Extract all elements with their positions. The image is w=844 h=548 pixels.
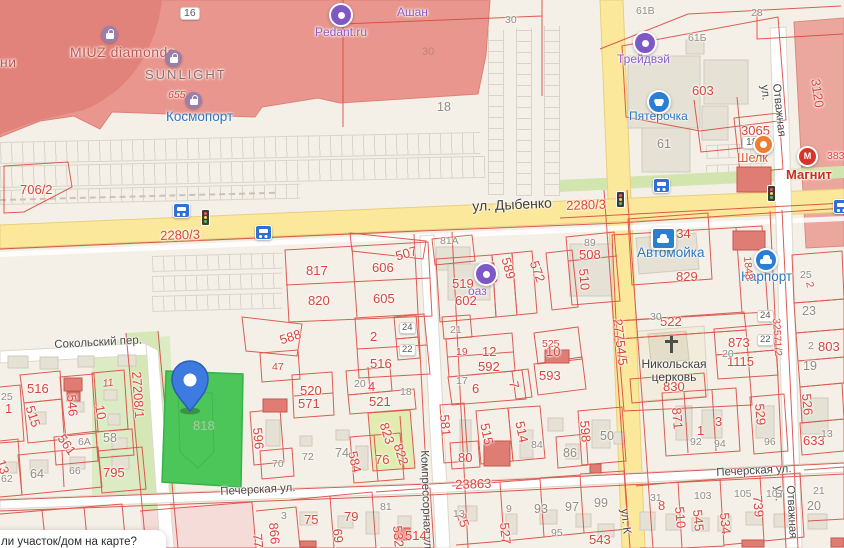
map-label: 96 [764,437,776,448]
poi-ashan[interactable]: Ашан [397,6,428,19]
map-label: 589 [498,256,517,281]
map-label: 47 [272,362,284,373]
map-label: 508 [579,248,601,262]
poi-pedant[interactable]: Pedant.ru [315,26,367,39]
map-label: 516 [370,357,392,371]
map-label: 84 [531,440,543,451]
map-label: 596 [250,427,266,450]
bus-icon[interactable] [833,199,844,214]
map-label: 74 [335,447,349,461]
map-label: 571 [298,397,320,411]
map-label: 30 [650,312,662,323]
map-label: 23863 [455,477,492,492]
map-label: 546 [64,394,80,417]
map-label: 543 [589,533,611,547]
map-label: 510 [576,268,592,291]
map-label: 20 [354,379,366,390]
map-label: 866 [266,522,282,545]
map-label: 803 [818,340,840,354]
map-label: 76 [375,453,389,467]
map-label: 6А [78,437,91,448]
map-label: 655 [168,90,186,101]
map-label: 21 [813,486,825,497]
map-label: 13 [821,429,833,440]
map-label: 64 [30,468,44,482]
magnit-icon[interactable] [797,146,818,167]
map-label: 61В [636,6,655,17]
map-label: 516 [27,382,49,396]
map-label: 2 [808,341,814,352]
poi-church[interactable]: Никольская церковь [638,358,710,384]
map-label: 50 [600,430,614,444]
map-label: 66 [69,466,81,477]
map-label: 522 [660,315,682,329]
map-label: 25 [800,270,812,281]
map-label: 871 [669,407,685,430]
map-label: 706/2 [20,183,53,197]
map-label: 10 [92,404,108,421]
map-label: 572 [527,259,548,284]
map-label: ул. К [618,508,633,534]
map-label: 581 [437,414,453,437]
traffic-icon [616,191,625,208]
map-label: 103 [694,491,712,502]
map-label: 820 [308,294,330,308]
bus-icon[interactable] [255,225,272,240]
map-label: 27208/1 [129,371,146,419]
map-label: 31 [650,493,662,504]
bag-icon[interactable] [185,92,202,109]
map-label: 19 [803,360,817,374]
map-label: 3 [281,511,287,522]
map-label: 829 [676,270,698,284]
map-label: 105 [734,489,752,500]
carport-icon[interactable] [754,248,778,272]
map-label: 510 [672,506,688,529]
map-label: 2280/3 [566,198,606,213]
map-label: 383 [827,151,844,162]
map-label: 515 [477,422,495,446]
map-label: 92 [690,437,702,448]
map-label: 593 [539,369,561,383]
selected-parcel-number: 818 [193,419,215,433]
map-label: 527 [497,522,513,545]
map-label: 532 [390,525,406,548]
map-label: 592 [478,360,500,374]
map-label: 30 [422,47,434,59]
map-label: 81 [380,502,392,513]
map-label: 70 [272,459,284,470]
map-label: 588 [278,327,303,347]
map-label: 77 [250,533,265,548]
street-pecherskaya: Печерская ул. [716,463,792,479]
map-label: 514 [405,529,427,543]
map-label: 81А [440,236,459,247]
map-label: 19 [456,347,468,358]
map-label: 20 [807,500,821,514]
map-label: 545 [690,509,706,532]
map-label: 80 [458,451,472,465]
map-label: 514 [512,420,530,444]
pedant-icon[interactable] [329,3,353,27]
church-icon [662,336,682,356]
map-label: 2280/3 [160,228,200,243]
poi-miuz[interactable]: MIUZ diamonds [70,45,175,60]
map-label: 21 [450,325,462,336]
map-label: 69 [330,528,345,544]
map-label: 817 [306,264,328,278]
map-label: 75 [304,513,318,527]
map-label: 32571/2 [770,318,783,357]
map-label: 93 [534,503,548,517]
poi-kosmoport[interactable]: Космопорт [166,110,233,125]
oasis-icon[interactable] [474,262,498,286]
map-label: 3120 [808,78,826,109]
map-label: 20 [722,349,734,360]
map-label: 95 [551,528,563,539]
map-label: 86 [563,447,577,461]
map-label: 4 [368,380,375,394]
map-label: 18 [400,387,412,398]
map-label: 107 [766,489,784,500]
bus-icon[interactable] [653,178,670,193]
map-label: 72 [302,452,314,463]
map-label: 603 [692,84,714,98]
map-canvas[interactable]: 16MIUZ diamondsSUNLIGHT655КосмопортниАша… [0,0,844,548]
map-label: 739 [750,495,766,518]
map-label: 606 [372,261,394,275]
carwash-icon[interactable] [651,227,676,250]
bus-icon[interactable] [173,203,190,218]
pyat-icon[interactable] [647,90,671,114]
map-label: 13 [453,509,465,520]
map-label: 521 [369,395,391,409]
shelk-icon[interactable] [753,134,774,155]
map-label: 23 [802,305,816,319]
map-label: 9 [506,504,512,515]
street-pecherskaya: Печерская ул. [220,482,296,498]
street-dybenko: ул. Дыбенко [472,196,552,215]
house-badge: 16 [180,7,200,20]
map-label: 1 [5,402,12,416]
map-label: 6 [472,382,479,396]
map-banner[interactable]: ли участок/дом на карте? [0,530,166,548]
house-badge: 24 [399,322,416,334]
map-label[interactable]: ни [0,55,17,70]
traffic-icon [201,209,210,226]
labels-layer: 16MIUZ diamondsSUNLIGHT655КосмопортниАша… [0,0,844,548]
map-label: 28 [751,8,763,19]
map-label: 61Б [688,33,707,44]
street-sokolsky: Сокольский пер. [54,334,142,351]
poi-sunlight[interactable]: SUNLIGHT [145,68,227,82]
map-label: 534 [717,512,733,535]
map-label: 507 [394,244,419,263]
map-label: 515 [23,404,43,429]
poi-oasis[interactable]: оаз [468,285,487,298]
map-label: 795 [103,466,125,480]
poi-magnit[interactable]: Магнит [786,168,832,182]
map-label: 605 [373,292,395,306]
map-label: 2 [803,281,815,289]
traffic-icon [767,185,776,202]
traidway-icon[interactable] [633,31,657,55]
map-label: 12 [482,345,496,359]
map-banner-text: ли участок/дом на карте? [1,536,137,548]
map-label: 62 [1,474,13,485]
map-label: 97 [565,501,579,515]
map-label: 1848 [741,256,754,280]
map-label: 11 [102,377,114,390]
map-label: 61 [657,138,671,152]
house-badge: 22 [399,344,416,356]
map-label: 18 [437,101,451,115]
map-label: 79 [344,510,358,524]
map-label: 822 [391,442,411,467]
map-label: 99 [594,497,608,511]
map-label: 823 [377,421,397,446]
bag-icon[interactable] [165,50,182,67]
map-label: 7 [506,380,521,390]
map-label: 3 [715,415,722,429]
bag-icon[interactable] [101,26,118,43]
map-label: 27754/5 [610,318,630,366]
map-label: 526 [799,393,815,416]
map-label: 17 [456,376,468,387]
map-label: 94 [714,439,726,450]
map-label: 10 [546,345,560,359]
map-label: 529 [752,403,768,426]
map-label: 561 [55,432,79,458]
map-label: 58 [103,432,117,446]
map-label: 30 [505,15,517,26]
map-label: 598 [577,420,593,443]
map-label: 2 [370,330,377,344]
